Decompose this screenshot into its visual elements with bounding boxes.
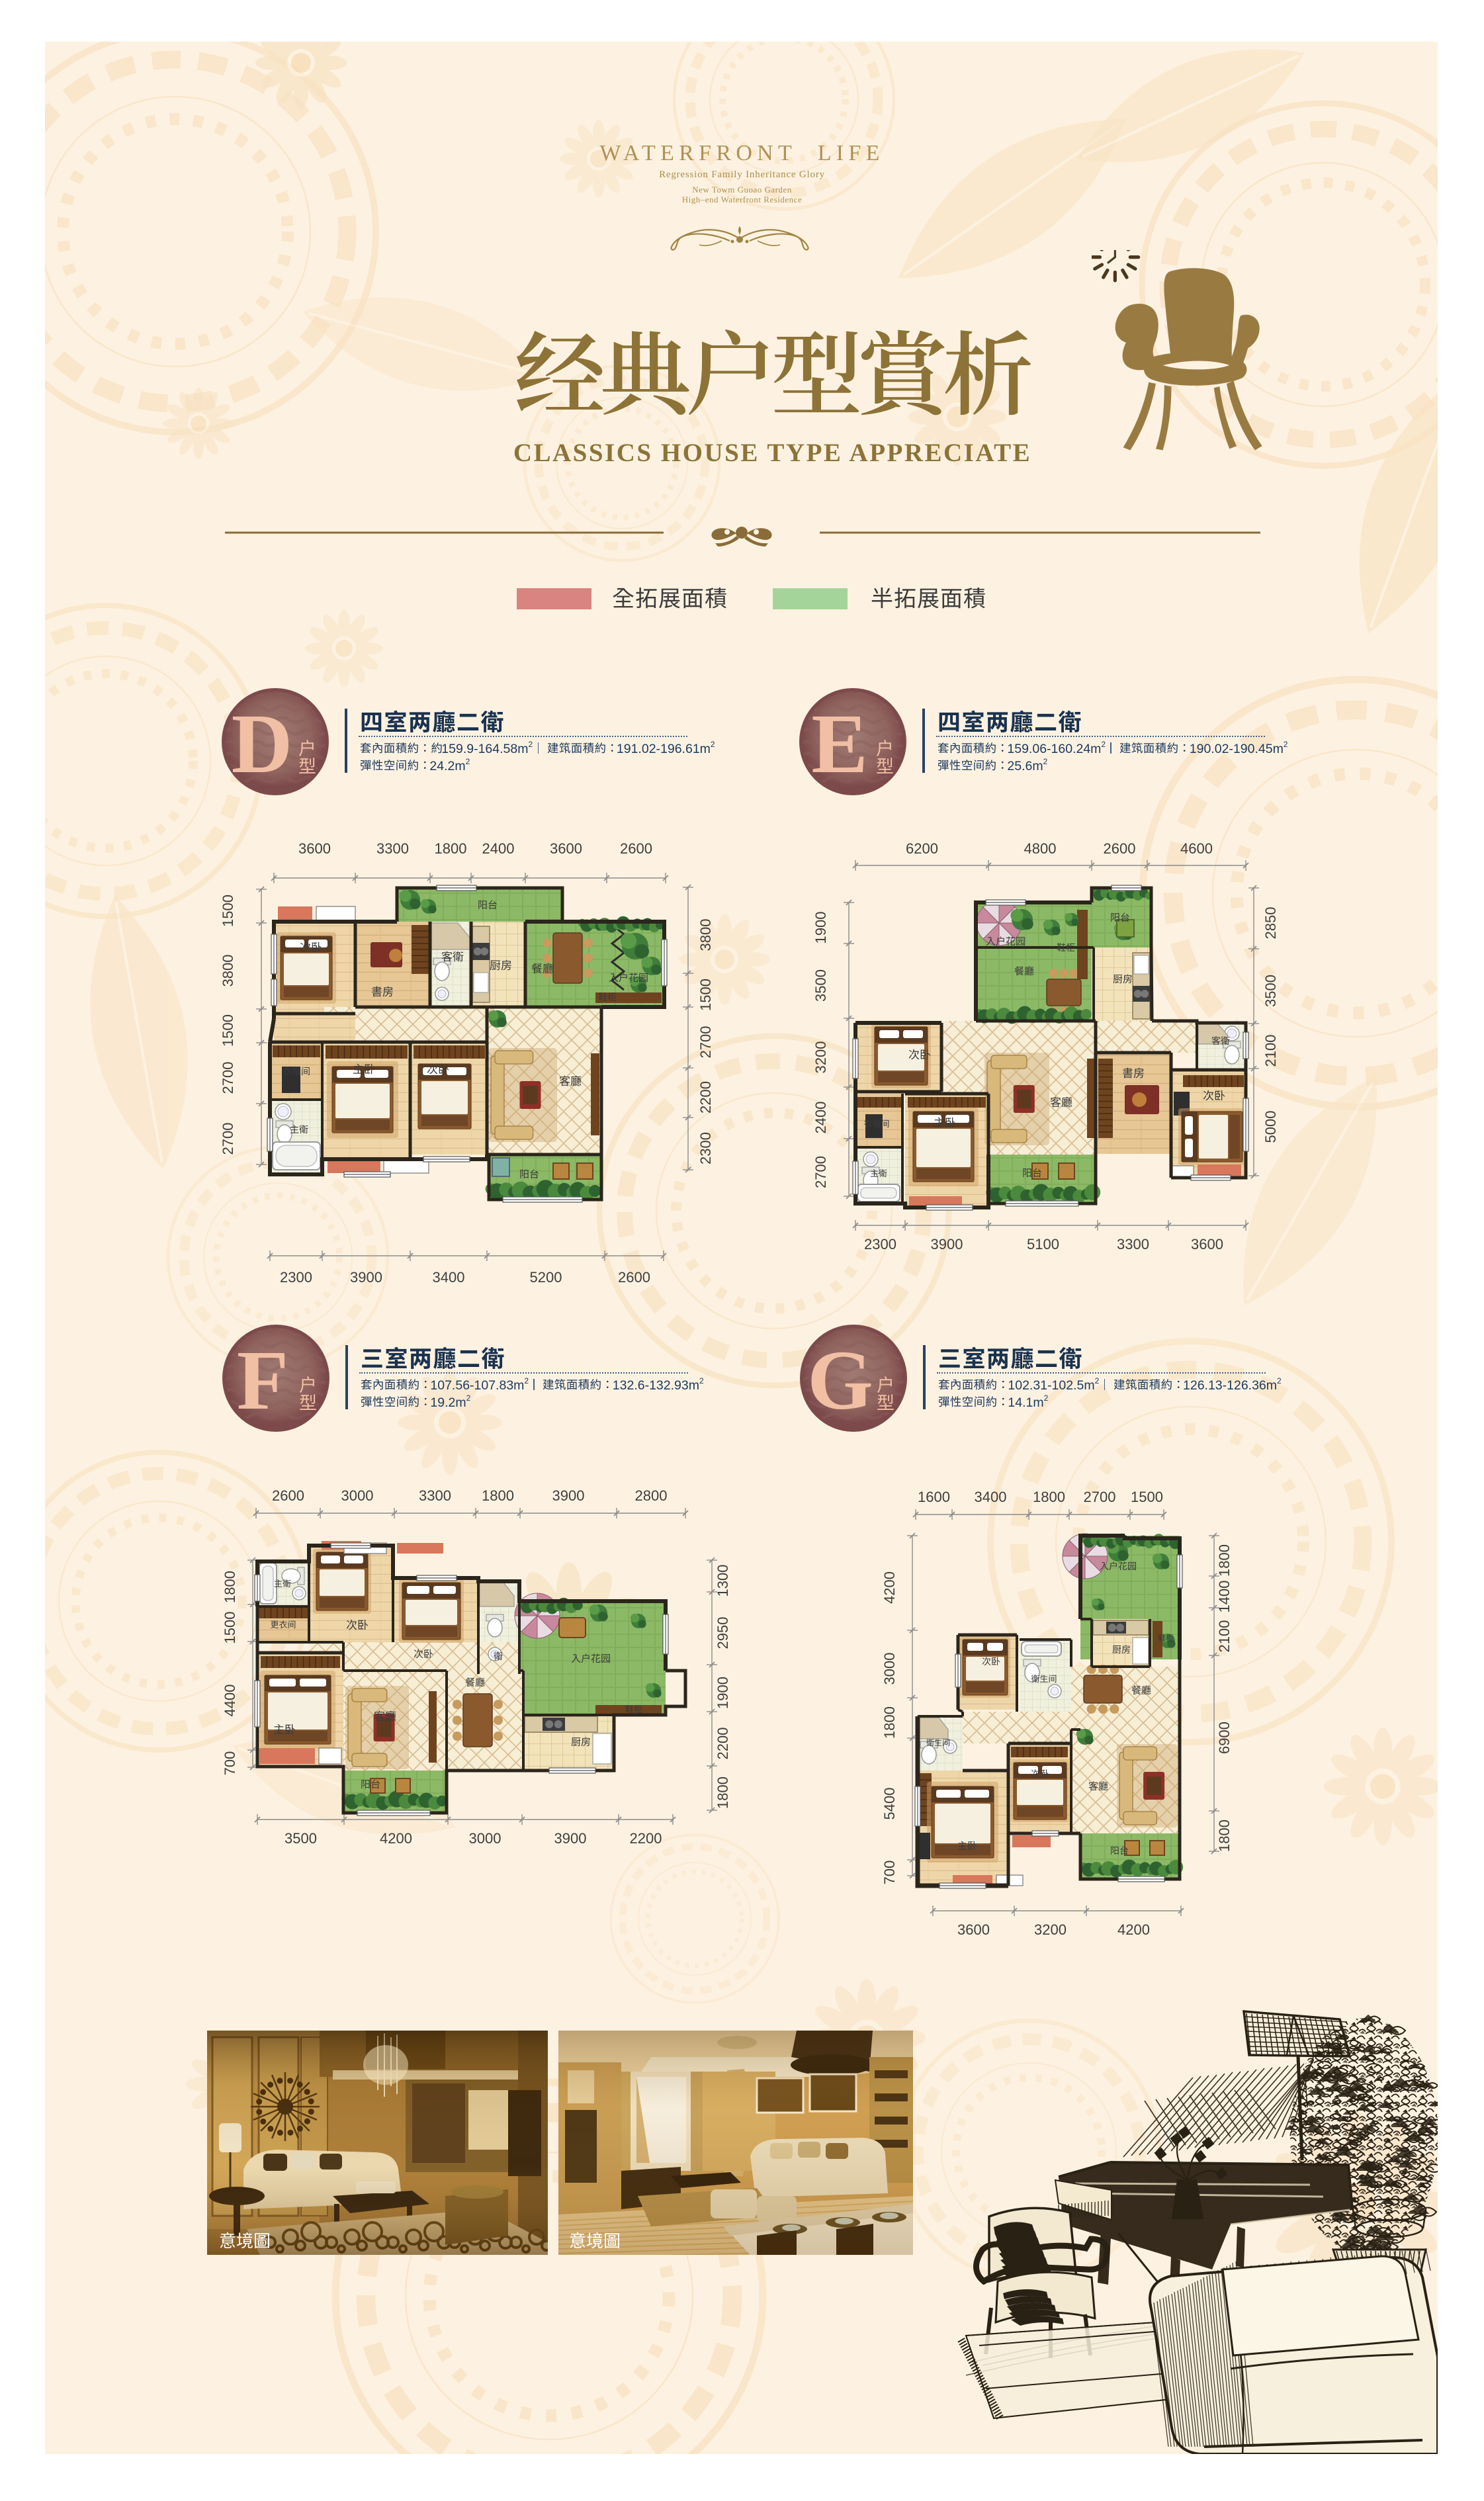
svg-text:1500: 1500 — [222, 1612, 238, 1644]
svg-text:2600: 2600 — [272, 1487, 304, 1504]
svg-text:3900: 3900 — [554, 1830, 587, 1847]
svg-text:D: D — [232, 697, 292, 791]
svg-text:1500: 1500 — [220, 1014, 236, 1047]
svg-text:1800: 1800 — [715, 1777, 731, 1809]
svg-text:1500: 1500 — [1131, 1489, 1163, 1505]
svg-text:3400: 3400 — [975, 1489, 1007, 1505]
svg-text:2400: 2400 — [482, 840, 515, 857]
svg-text:6900: 6900 — [1216, 1722, 1233, 1754]
svg-text:2700: 2700 — [814, 1156, 829, 1188]
svg-text:5100: 5100 — [1027, 1236, 1059, 1252]
svg-text:3800: 3800 — [220, 955, 236, 987]
svg-text:2700: 2700 — [220, 1062, 236, 1094]
svg-text:1900: 1900 — [715, 1677, 731, 1709]
svg-text:3600: 3600 — [298, 840, 331, 857]
svg-text:3600: 3600 — [550, 840, 582, 857]
svg-text:G: G — [807, 1333, 873, 1427]
svg-text:2850: 2850 — [1262, 907, 1279, 940]
svg-text:2600: 2600 — [618, 1269, 650, 1286]
svg-text:6200: 6200 — [906, 840, 938, 857]
svg-text:3900: 3900 — [350, 1269, 382, 1286]
svg-text:1500: 1500 — [220, 895, 236, 927]
svg-text:3900: 3900 — [552, 1487, 585, 1504]
svg-text:700: 700 — [222, 1751, 238, 1776]
svg-text:2600: 2600 — [620, 840, 652, 857]
svg-text:3200: 3200 — [814, 1041, 829, 1074]
svg-text:3600: 3600 — [1191, 1236, 1223, 1252]
svg-text:2100: 2100 — [1262, 1035, 1279, 1067]
svg-text:3500: 3500 — [814, 969, 829, 1002]
svg-text:2200: 2200 — [630, 1830, 662, 1847]
svg-text:2950: 2950 — [715, 1617, 731, 1649]
svg-text:1600: 1600 — [918, 1489, 950, 1505]
svg-text:2200: 2200 — [697, 1081, 714, 1114]
svg-text:1400: 1400 — [1216, 1581, 1233, 1613]
svg-text:5400: 5400 — [881, 1788, 898, 1820]
svg-text:5000: 5000 — [1262, 1111, 1279, 1143]
svg-text:1800: 1800 — [435, 840, 467, 857]
svg-text:3300: 3300 — [419, 1487, 451, 1504]
svg-text:2300: 2300 — [697, 1132, 714, 1164]
svg-text:4400: 4400 — [222, 1685, 238, 1717]
svg-text:2200: 2200 — [715, 1728, 731, 1760]
svg-text:700: 700 — [881, 1861, 898, 1885]
svg-text:1300: 1300 — [715, 1565, 731, 1597]
svg-text:2600: 2600 — [1104, 840, 1136, 857]
svg-text:F: F — [237, 1333, 288, 1427]
svg-text:4200: 4200 — [380, 1830, 412, 1847]
svg-text:2800: 2800 — [635, 1487, 668, 1504]
svg-text:4200: 4200 — [1117, 1921, 1150, 1938]
svg-text:3300: 3300 — [1117, 1236, 1149, 1252]
svg-text:2400: 2400 — [814, 1102, 829, 1134]
svg-text:1800: 1800 — [222, 1571, 238, 1603]
svg-text:1500: 1500 — [697, 979, 714, 1011]
svg-text:E: E — [811, 697, 867, 791]
svg-text:3000: 3000 — [469, 1830, 502, 1847]
svg-text:1800: 1800 — [1216, 1544, 1233, 1577]
svg-text:1800: 1800 — [1216, 1820, 1233, 1852]
svg-text:4600: 4600 — [1180, 840, 1213, 857]
svg-text:3200: 3200 — [1034, 1921, 1067, 1938]
svg-text:2700: 2700 — [697, 1026, 714, 1059]
svg-text:3000: 3000 — [341, 1487, 374, 1504]
svg-text:5200: 5200 — [530, 1269, 562, 1286]
svg-text:1800: 1800 — [881, 1706, 898, 1739]
svg-text:3600: 3600 — [957, 1921, 990, 1938]
svg-text:2700: 2700 — [220, 1123, 236, 1155]
svg-text:4200: 4200 — [881, 1571, 898, 1604]
svg-text:2300: 2300 — [864, 1236, 896, 1252]
svg-text:2700: 2700 — [1084, 1489, 1116, 1505]
svg-text:3500: 3500 — [1262, 975, 1279, 1007]
svg-text:1900: 1900 — [814, 912, 829, 944]
svg-text:1800: 1800 — [482, 1487, 514, 1504]
svg-text:1800: 1800 — [1033, 1489, 1065, 1505]
svg-text:4800: 4800 — [1024, 840, 1057, 857]
svg-text:3300: 3300 — [376, 840, 409, 857]
svg-text:3400: 3400 — [433, 1269, 465, 1286]
svg-text:3000: 3000 — [881, 1653, 898, 1685]
svg-text:2300: 2300 — [280, 1269, 312, 1286]
svg-text:3500: 3500 — [284, 1830, 317, 1847]
svg-text:2100: 2100 — [1216, 1620, 1233, 1653]
svg-text:3900: 3900 — [931, 1236, 963, 1252]
svg-text:3800: 3800 — [697, 919, 714, 951]
